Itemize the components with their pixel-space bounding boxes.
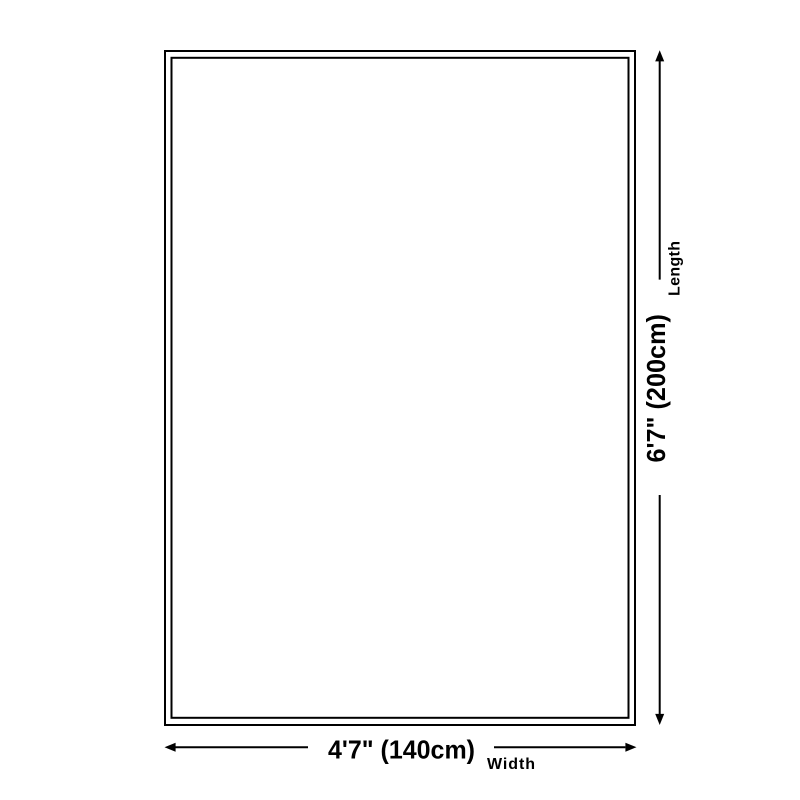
svg-text:Width: Width — [487, 756, 535, 773]
svg-text:4'7" (140cm): 4'7" (140cm) — [328, 735, 475, 765]
svg-text:6'7" (200cm): 6'7" (200cm) — [641, 314, 671, 463]
svg-text:Length: Length — [667, 241, 684, 296]
